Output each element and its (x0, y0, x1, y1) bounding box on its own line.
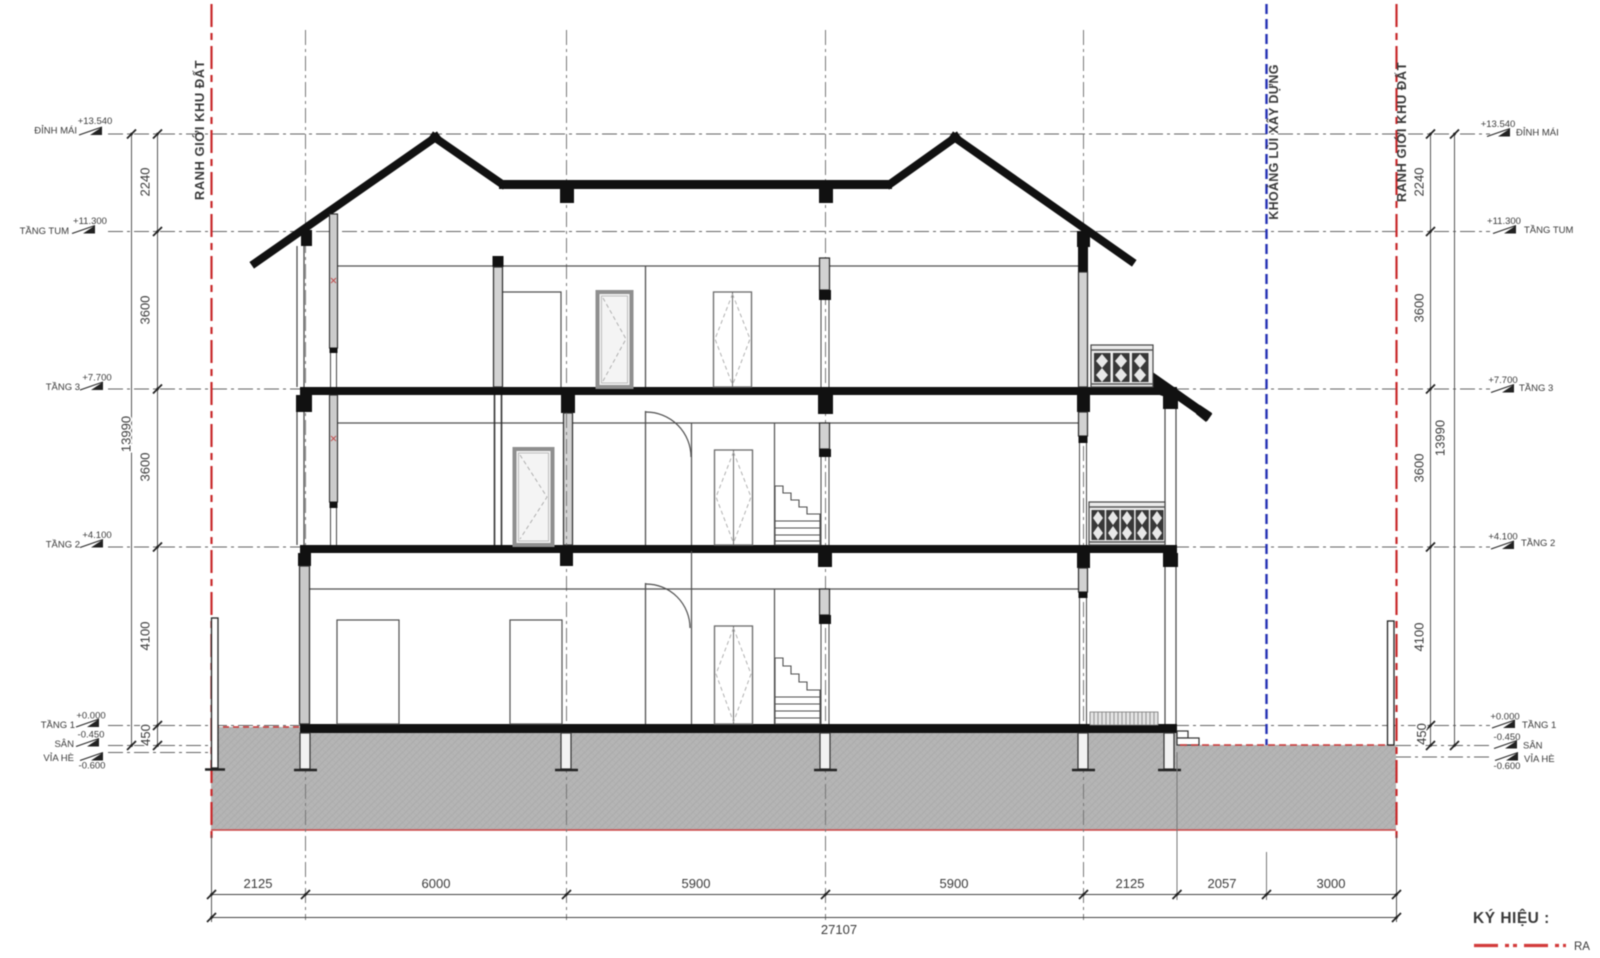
svg-text:2240: 2240 (1412, 168, 1427, 197)
svg-text:+0.000: +0.000 (1490, 712, 1519, 723)
svg-text:+11.300: +11.300 (73, 216, 107, 227)
svg-text:3600: 3600 (138, 296, 153, 325)
svg-text:TẦNG 2: TẦNG 2 (46, 540, 80, 551)
svg-text:3600: 3600 (138, 453, 153, 482)
svg-text:+0.000: +0.000 (76, 711, 105, 722)
svg-text:+13.540: +13.540 (1481, 119, 1516, 130)
svg-text:+7.700: +7.700 (82, 373, 111, 384)
svg-text:13990: 13990 (1433, 420, 1448, 456)
svg-text:TẦNG 1: TẦNG 1 (41, 720, 75, 731)
svg-text:-0.450: -0.450 (78, 730, 105, 741)
svg-text:TẦNG TUM: TẦNG TUM (20, 226, 70, 237)
svg-text:3000: 3000 (1317, 876, 1346, 891)
svg-text:-0.600: -0.600 (1494, 761, 1521, 772)
svg-text:4100: 4100 (138, 622, 153, 651)
svg-text:TẦNG 3: TẦNG 3 (46, 382, 80, 393)
svg-text:-0.600: -0.600 (79, 761, 106, 772)
svg-text:ĐỈNH MÁI: ĐỈNH MÁI (1516, 127, 1559, 139)
svg-text:KÝ HIỆU :: KÝ HIỆU : (1473, 909, 1550, 927)
svg-text:TẦNG 2: TẦNG 2 (1521, 538, 1555, 549)
svg-text:VỈA HÈ: VỈA HÈ (43, 752, 74, 764)
svg-text:RA: RA (1574, 941, 1590, 953)
svg-text:ĐỈNH MÁI: ĐỈNH MÁI (34, 125, 77, 137)
svg-text:5900: 5900 (940, 876, 969, 891)
svg-text:TẦNG TUM: TẦNG TUM (1524, 225, 1574, 236)
svg-text:5900: 5900 (682, 876, 711, 891)
svg-text:450: 450 (138, 724, 153, 746)
svg-text:3600: 3600 (1412, 294, 1427, 323)
svg-text:SÂN: SÂN (1523, 741, 1543, 752)
svg-text:27107: 27107 (821, 922, 857, 937)
svg-text:2240: 2240 (138, 168, 153, 197)
svg-text:+13.540: +13.540 (78, 116, 113, 127)
svg-text:TẦNG 1: TẦNG 1 (1522, 720, 1556, 731)
svg-text:450: 450 (1414, 723, 1429, 745)
svg-text:KHOẢNG LÙI XÂY DỰNG: KHOẢNG LÙI XÂY DỰNG (1266, 64, 1281, 219)
svg-text:2057: 2057 (1208, 876, 1237, 891)
svg-text:3600: 3600 (1412, 454, 1427, 483)
svg-text:TẦNG 3: TẦNG 3 (1519, 383, 1553, 394)
svg-text:4100: 4100 (1412, 623, 1427, 652)
svg-text:RANH GIỚI KHU ĐẤT: RANH GIỚI KHU ĐẤT (192, 60, 207, 200)
svg-text:2125: 2125 (244, 876, 273, 891)
svg-text:SÂN: SÂN (54, 739, 74, 750)
svg-text:RANH GIỚI KHU ĐẤT: RANH GIỚI KHU ĐẤT (1394, 62, 1409, 202)
svg-text:+4.100: +4.100 (82, 530, 111, 541)
svg-text:VỈA HÈ: VỈA HÈ (1524, 753, 1555, 765)
svg-text:6000: 6000 (422, 876, 451, 891)
svg-text:13990: 13990 (119, 416, 134, 452)
svg-text:2125: 2125 (1116, 876, 1145, 891)
